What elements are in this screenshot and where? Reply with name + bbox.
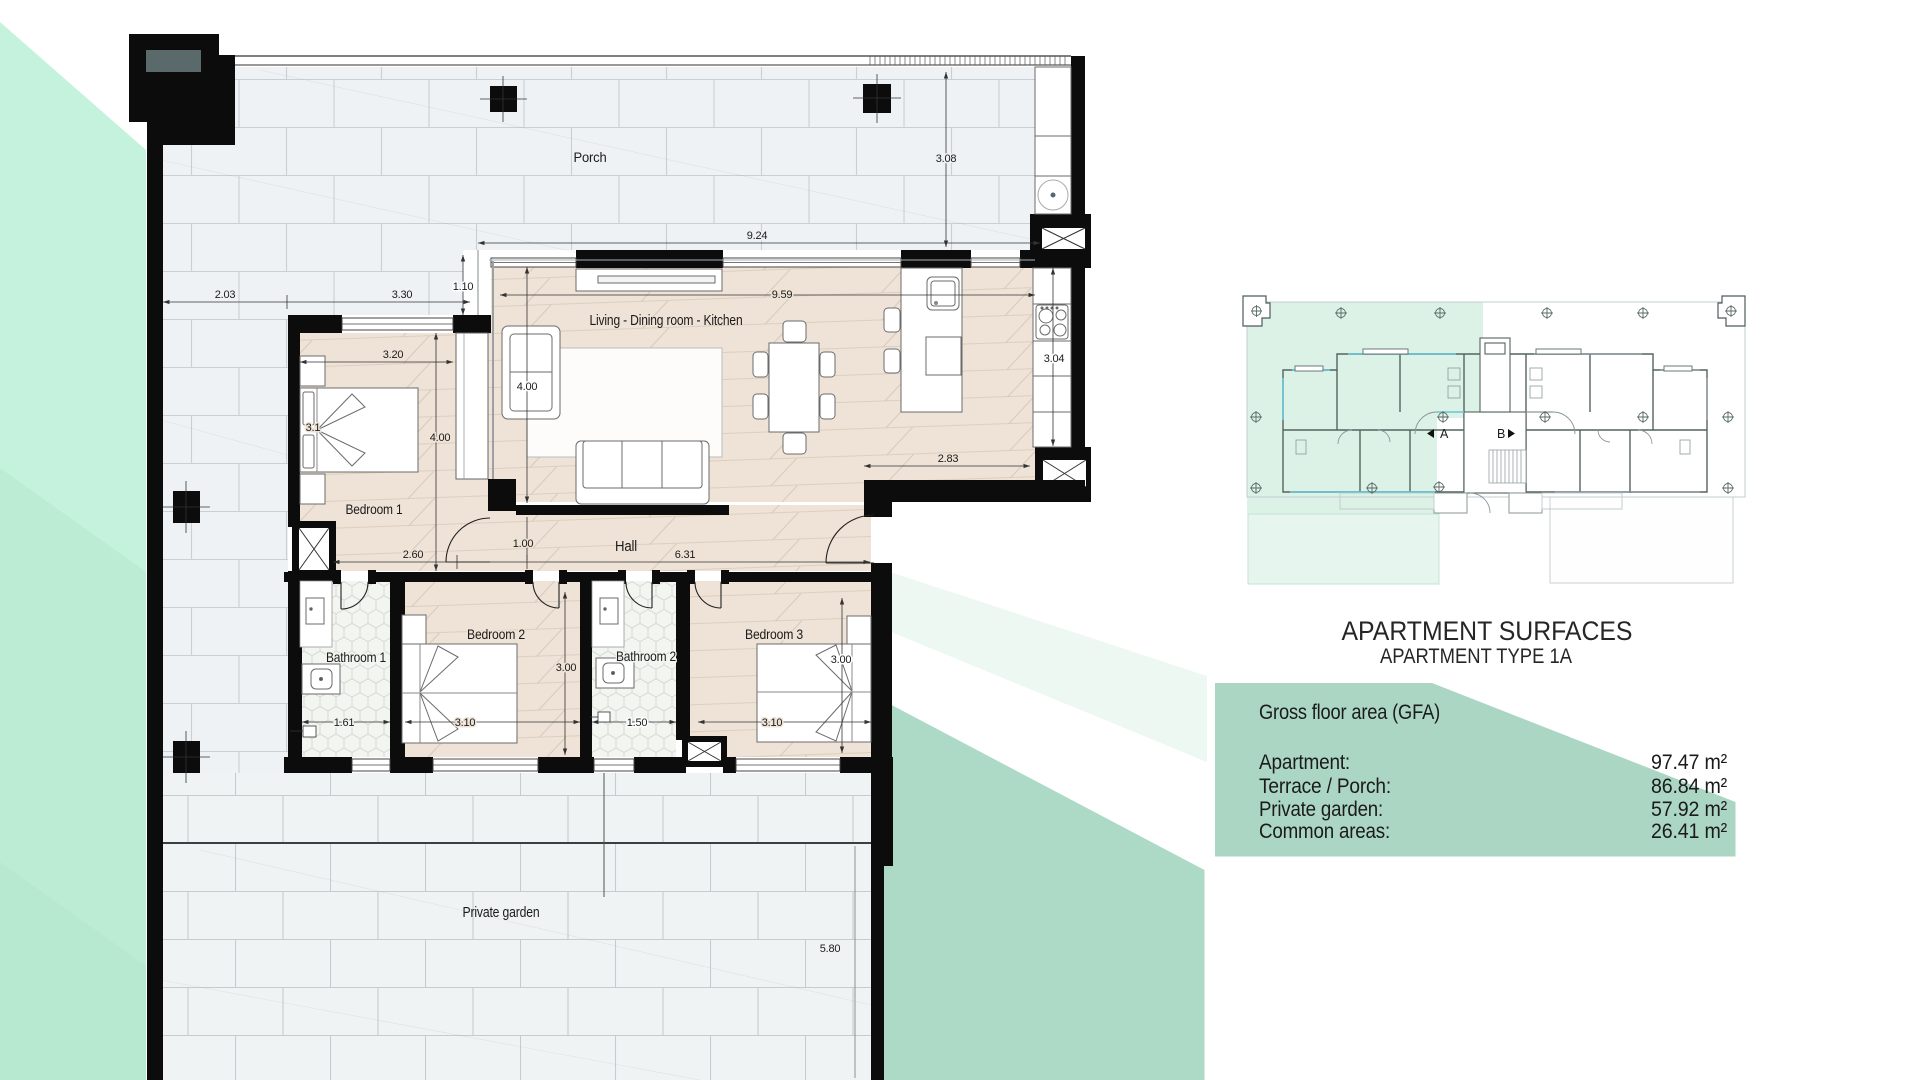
svg-text:Hall: Hall <box>615 538 637 555</box>
svg-text:3.00: 3.00 <box>556 662 577 674</box>
svg-text:1.61: 1.61 <box>334 717 355 729</box>
svg-text:4.00: 4.00 <box>430 432 451 444</box>
svg-text:B: B <box>1497 427 1505 441</box>
svg-text:9.59: 9.59 <box>772 289 793 301</box>
svg-text:4.00: 4.00 <box>517 381 538 393</box>
svg-text:3.30: 3.30 <box>392 289 413 301</box>
svg-text:3.10: 3.10 <box>455 717 476 729</box>
svg-text:2.03: 2.03 <box>215 289 236 301</box>
svg-text:APARTMENT TYPE 1A: APARTMENT TYPE 1A <box>1380 645 1572 668</box>
svg-text:Living - Dining room - Kitchen: Living - Dining room - Kitchen <box>590 312 743 329</box>
svg-text:Common areas:: Common areas: <box>1259 820 1390 843</box>
svg-text:Private garden:: Private garden: <box>1259 798 1383 821</box>
svg-text:Porch: Porch <box>574 149 607 165</box>
svg-text:APARTMENT SURFACES: APARTMENT SURFACES <box>1342 616 1633 646</box>
svg-text:86.84 m²: 86.84 m² <box>1651 775 1727 798</box>
svg-text:Bathroom 1: Bathroom 1 <box>326 649 386 665</box>
svg-text:3.04: 3.04 <box>1044 353 1065 365</box>
svg-text:1.00: 1.00 <box>513 538 534 550</box>
svg-text:3.00: 3.00 <box>831 654 852 666</box>
svg-text:A: A <box>1440 427 1449 441</box>
svg-text:9.24: 9.24 <box>747 230 768 242</box>
svg-text:6.31: 6.31 <box>675 549 696 561</box>
svg-text:2.83: 2.83 <box>938 453 959 465</box>
svg-text:3.20: 3.20 <box>383 349 404 361</box>
svg-text:97.47 m²: 97.47 m² <box>1651 751 1727 774</box>
svg-text:3.08: 3.08 <box>936 153 957 165</box>
svg-text:Bedroom 1: Bedroom 1 <box>346 501 403 517</box>
svg-text:5.80: 5.80 <box>820 943 841 955</box>
svg-text:Private garden: Private garden <box>463 904 540 921</box>
svg-text:1.10: 1.10 <box>453 281 474 293</box>
svg-text:3.10: 3.10 <box>762 717 783 729</box>
svg-text:Gross floor area (GFA): Gross floor area (GFA) <box>1259 701 1440 724</box>
svg-text:Bedroom 2: Bedroom 2 <box>467 626 525 642</box>
svg-text:Terrace / Porch:: Terrace / Porch: <box>1259 775 1391 798</box>
svg-text:2.60: 2.60 <box>403 549 424 561</box>
svg-text:3.1: 3.1 <box>306 422 321 434</box>
svg-text:Apartment:: Apartment: <box>1259 751 1350 774</box>
svg-text:26.41 m²: 26.41 m² <box>1651 820 1727 843</box>
svg-text:57.92 m²: 57.92 m² <box>1651 798 1727 821</box>
svg-text:Bathroom 2: Bathroom 2 <box>616 648 676 664</box>
svg-text:1.50: 1.50 <box>627 717 648 729</box>
svg-text:Bedroom 3: Bedroom 3 <box>745 626 803 642</box>
